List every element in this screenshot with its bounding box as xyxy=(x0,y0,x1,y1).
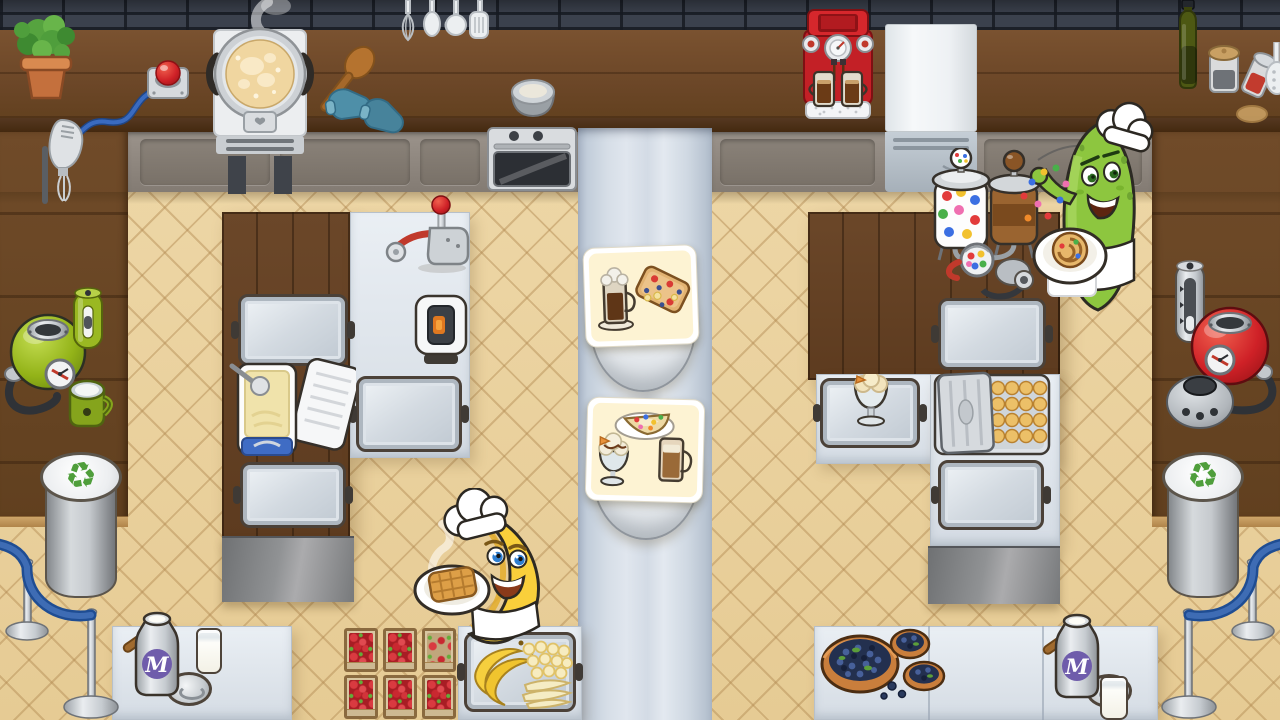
cabinet-panel xyxy=(420,139,480,185)
left-station-front xyxy=(222,536,354,602)
ice-box-with-butter[interactable] xyxy=(224,358,356,460)
candy-crepe-icon xyxy=(615,412,674,440)
oven-mitts xyxy=(324,82,412,134)
waffle xyxy=(428,566,477,602)
service-call-button[interactable] xyxy=(144,56,192,102)
milk-churn[interactable]: M xyxy=(1042,598,1112,706)
blueberry-bowls[interactable] xyxy=(812,618,962,716)
fruit-toast-icon xyxy=(634,265,692,316)
milk-glass[interactable] xyxy=(196,628,222,674)
juice-press[interactable] xyxy=(384,194,476,276)
milk-label: M xyxy=(1064,654,1089,679)
sprinkles-dispenser[interactable] xyxy=(933,148,989,248)
rope-barrier-left xyxy=(0,535,150,720)
cabinet-panel xyxy=(720,139,875,185)
order-ticket-2[interactable] xyxy=(585,396,706,503)
hanging-utensil-rack xyxy=(398,0,498,44)
metal-tray[interactable] xyxy=(938,460,1044,530)
stove-with-pancake-pot[interactable] xyxy=(204,0,318,200)
metal-tray[interactable] xyxy=(240,462,346,528)
pickle-chef xyxy=(1012,100,1172,335)
small-berry-bowl[interactable] xyxy=(904,662,944,690)
banana-slices xyxy=(524,642,573,679)
espresso-machine[interactable] xyxy=(794,4,882,122)
handheld-frother[interactable] xyxy=(28,110,112,208)
coffee-glass xyxy=(842,72,867,106)
recycle-icon: ♻ xyxy=(1184,456,1222,497)
small-berry-bowl[interactable] xyxy=(891,630,929,658)
muffin-box-lid xyxy=(938,373,994,454)
edge-slotted-spoon xyxy=(1262,42,1280,106)
red-tube xyxy=(949,262,959,278)
sundae-icon xyxy=(598,433,628,486)
cinnamon-roll xyxy=(1053,233,1087,267)
coffee-glass xyxy=(810,72,835,106)
sundae-glass[interactable] xyxy=(845,374,897,438)
fridge[interactable] xyxy=(885,24,977,132)
recycle-icon: ♻ xyxy=(62,456,100,497)
toaster[interactable] xyxy=(410,290,472,368)
right-station-front xyxy=(928,546,1060,604)
muffin-box[interactable] xyxy=(932,370,1052,458)
wooden-coaster xyxy=(1237,106,1267,122)
latte-icon xyxy=(659,438,691,481)
peeled-bananas xyxy=(523,680,570,708)
brick-wall xyxy=(0,0,1280,30)
olive-oil-bottle[interactable] xyxy=(1166,0,1206,96)
iced-coffee-icon xyxy=(597,267,635,330)
banana-chef xyxy=(408,488,570,646)
kitchen-scene: ♻ ♻ M xyxy=(0,0,1280,720)
green-grinder[interactable] xyxy=(68,284,108,352)
metal-bowl[interactable] xyxy=(506,66,560,120)
candy-mix-ball[interactable] xyxy=(961,244,993,276)
built-in-oven[interactable] xyxy=(486,126,578,194)
blender-base[interactable] xyxy=(1164,366,1236,430)
green-mug[interactable] xyxy=(60,374,114,430)
metal-tray[interactable] xyxy=(238,294,348,366)
order-ticket-1[interactable] xyxy=(582,244,699,348)
metal-tray[interactable] xyxy=(356,376,462,452)
rope-barrier-right xyxy=(1130,535,1280,720)
